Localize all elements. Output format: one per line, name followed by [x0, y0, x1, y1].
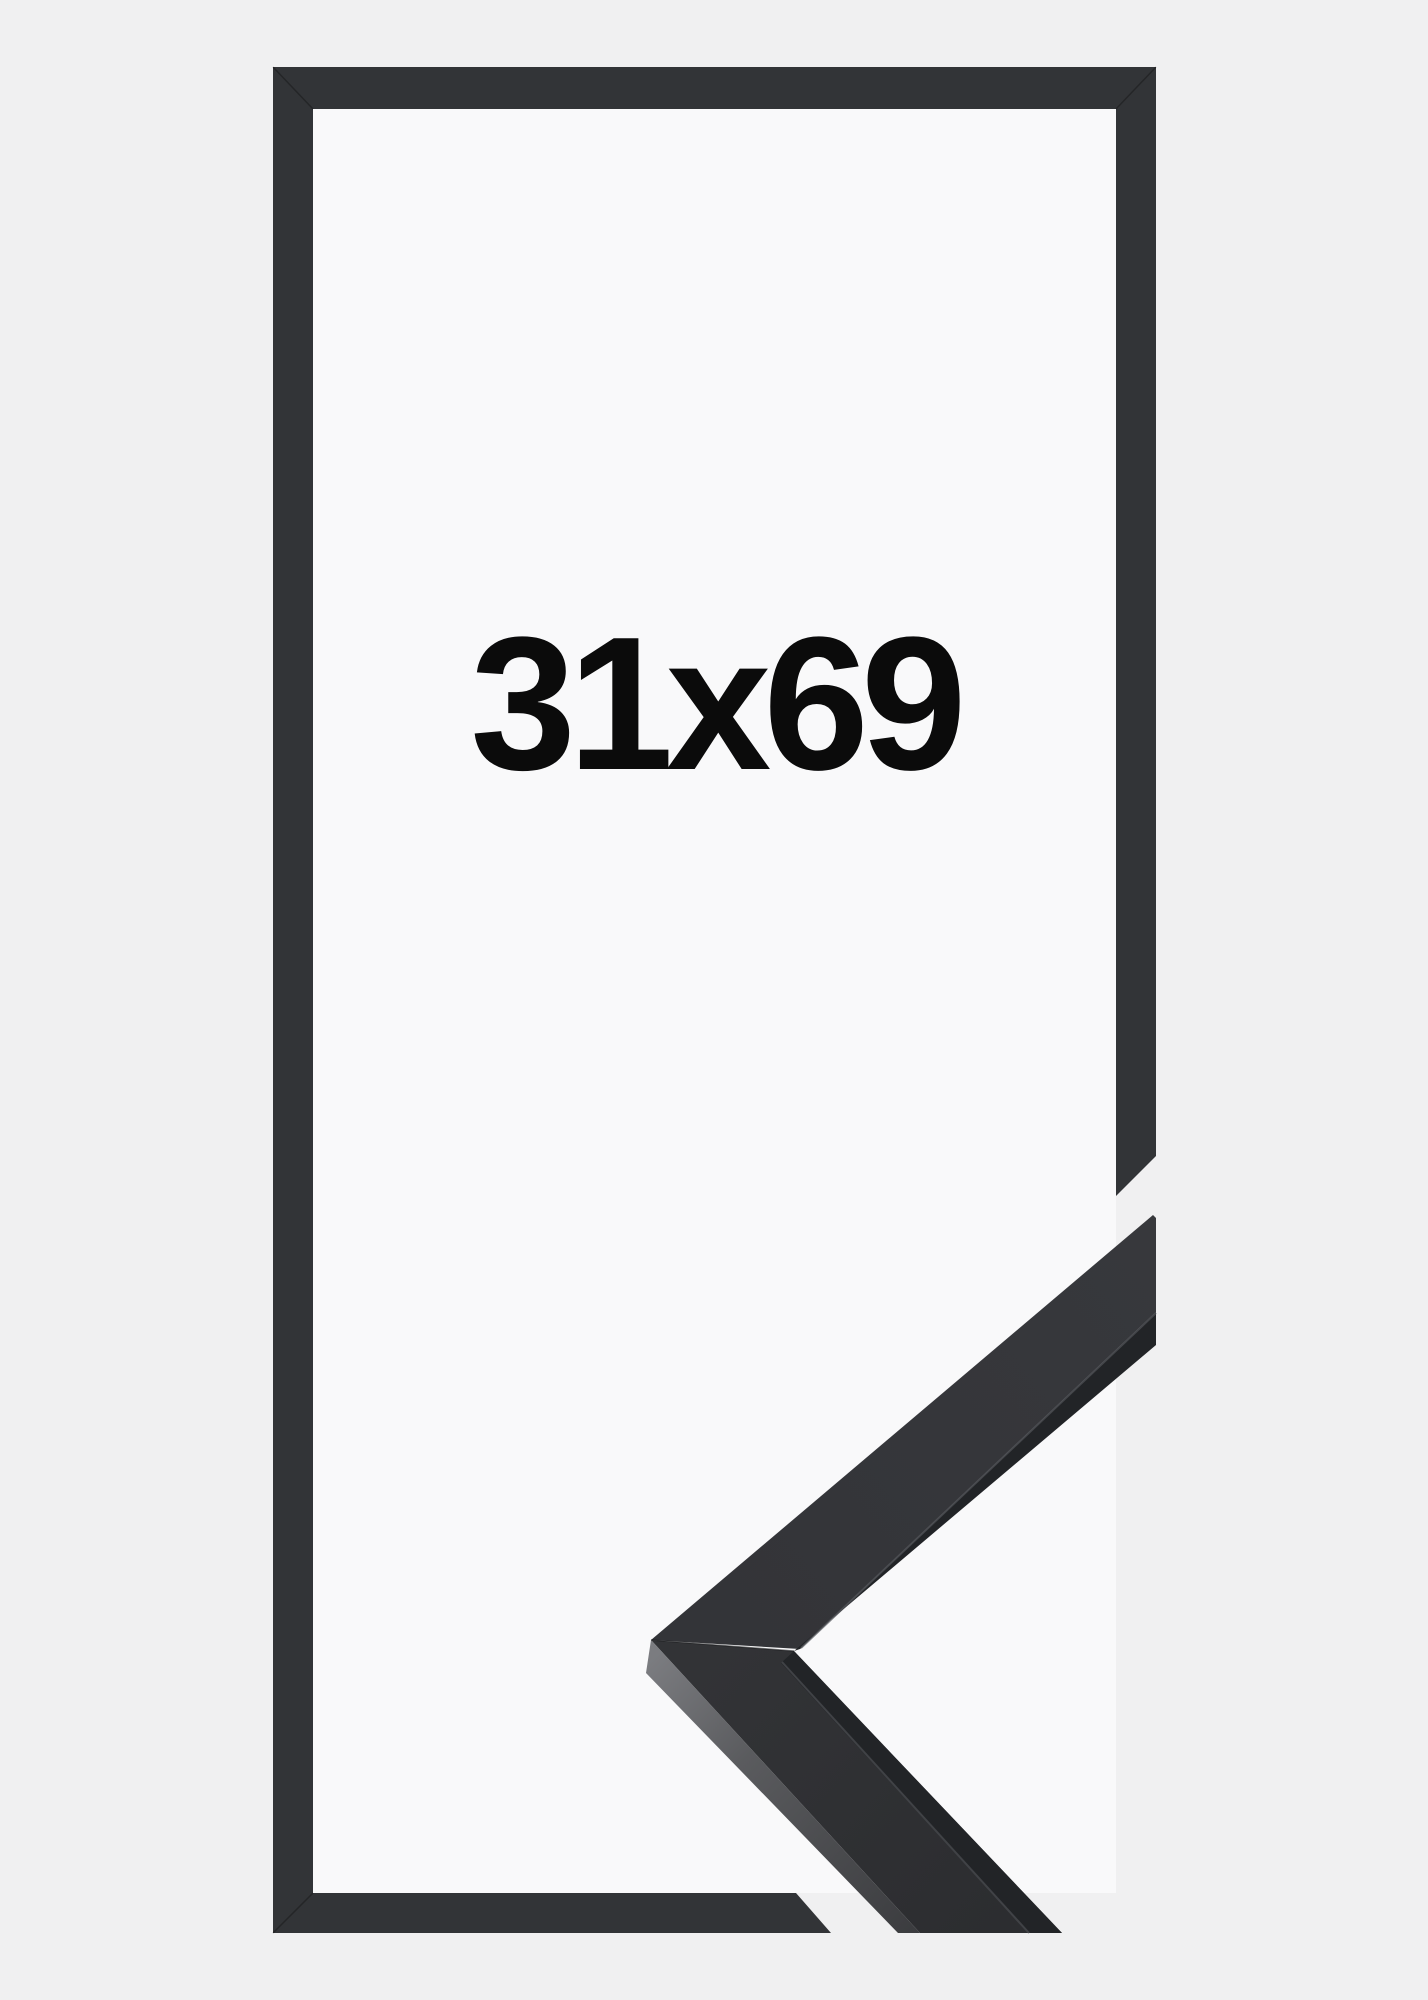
frame-outline-top-bar: [273, 67, 1156, 109]
frame-outline-bottom-bar: [313, 1893, 831, 1933]
frame-outline-left-bar: [273, 67, 313, 1933]
frame-artwork: [0, 0, 1428, 2000]
moulding-upper-arm-top-face: [651, 1215, 1156, 1649]
product-image-canvas: 31x69: [0, 0, 1428, 2000]
frame-outline-right-bar: [1116, 109, 1156, 1196]
size-label: 31x69: [313, 609, 1116, 799]
frame-corner-sample-photo: [646, 1215, 1156, 1933]
